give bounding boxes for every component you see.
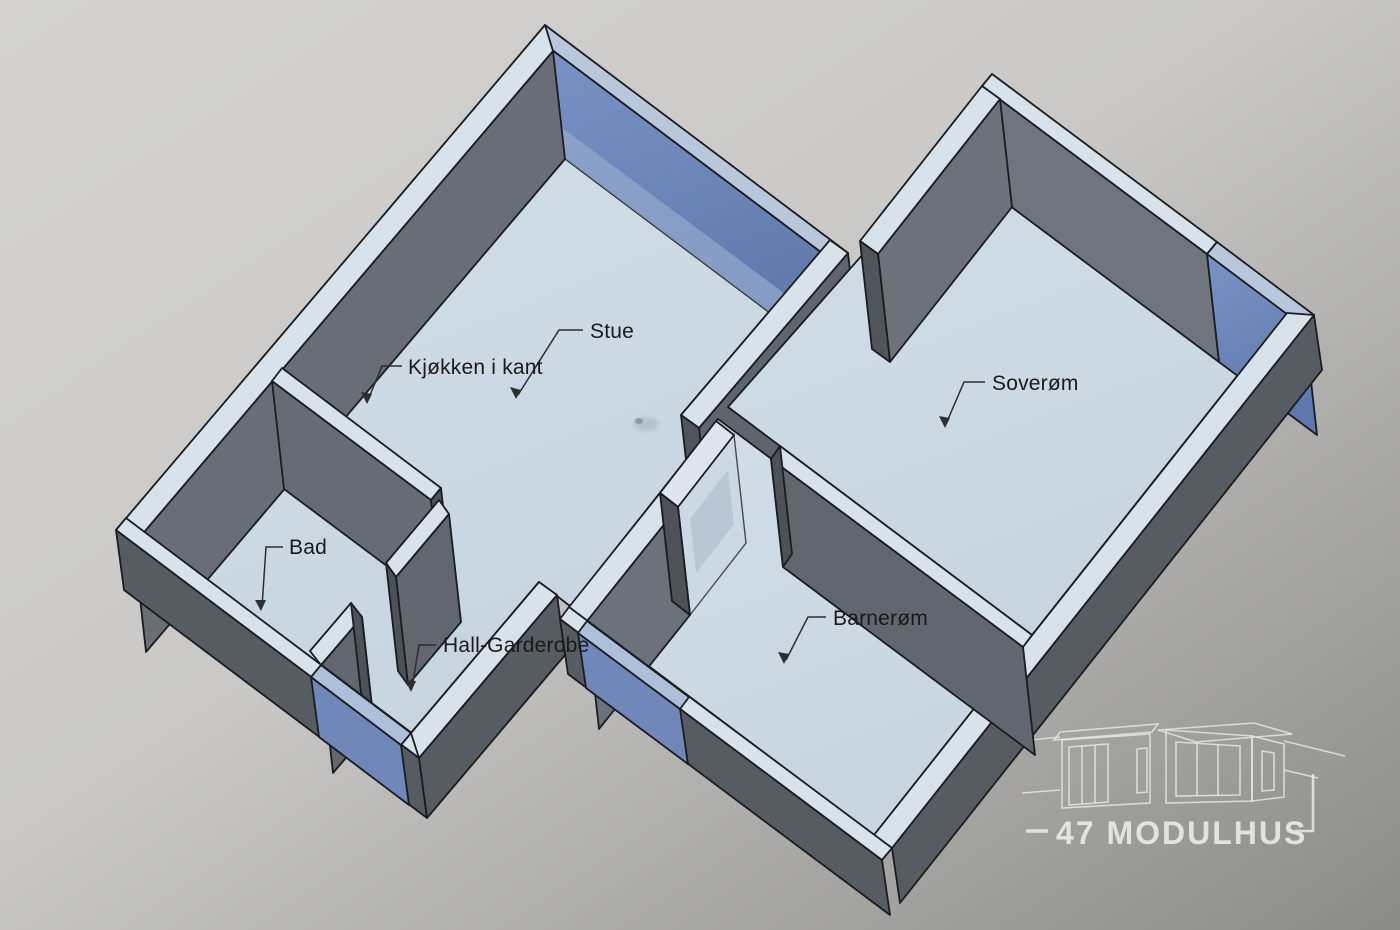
brand-name: 47 MODULHUS: [1056, 815, 1307, 851]
room-label-soverom: Soverøm: [992, 372, 1079, 395]
floorplan-screenshot: 47 MODULHUS: [0, 0, 1400, 930]
floorplan-canvas: 47 MODULHUS: [0, 0, 1400, 930]
room-label-hall: Hall-Garderobe: [443, 634, 589, 657]
room-label-kjokken: Kjøkken i kant: [408, 356, 543, 379]
room-label-bad: Bad: [289, 536, 327, 559]
artifact-smudge: [633, 417, 659, 431]
room-label-barnerom: Barnerøm: [833, 607, 928, 630]
room-label-stue: Stue: [590, 320, 634, 343]
